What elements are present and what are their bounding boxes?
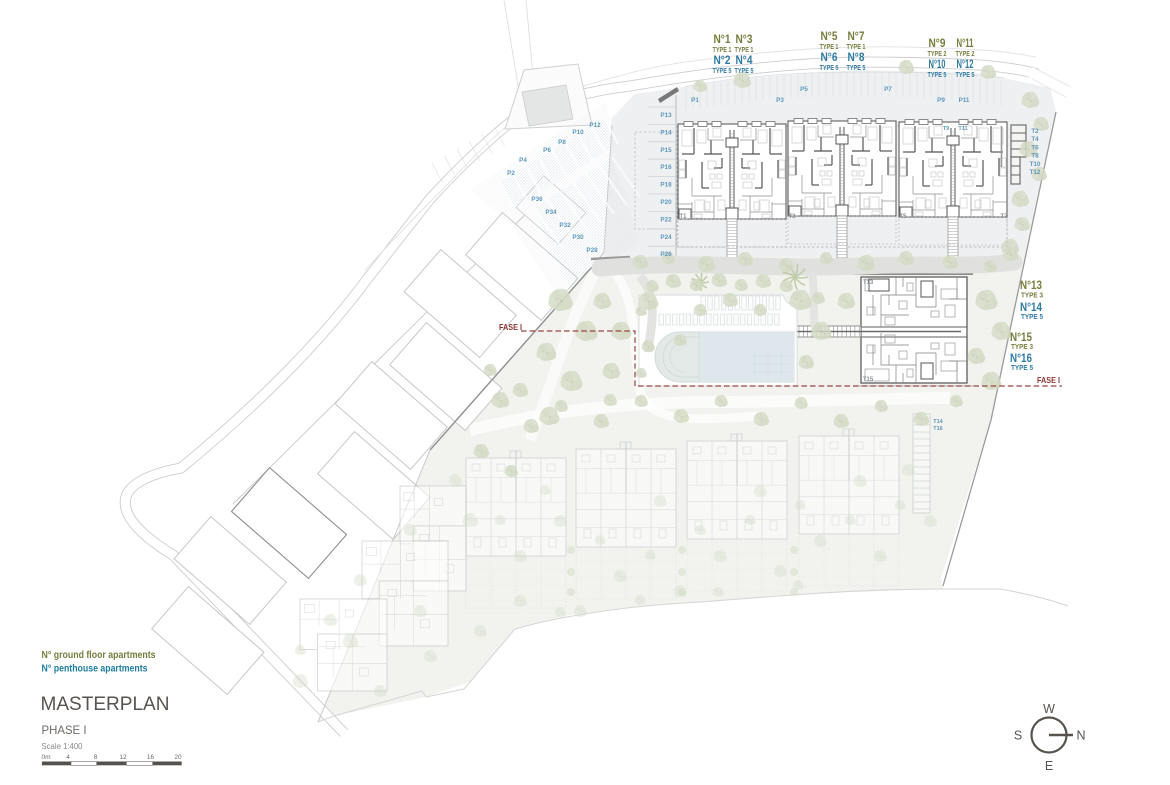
svg-text:T6: T6 bbox=[1031, 144, 1039, 151]
svg-text:P1: P1 bbox=[691, 97, 699, 104]
svg-text:TYPE 5: TYPE 5 bbox=[847, 65, 866, 72]
svg-text:N°10: N°10 bbox=[929, 59, 946, 71]
svg-text:T10: T10 bbox=[1030, 161, 1041, 168]
svg-text:P3: P3 bbox=[776, 97, 784, 104]
svg-text:N°2: N°2 bbox=[714, 55, 731, 67]
svg-text:T14: T14 bbox=[933, 419, 943, 425]
svg-text:TYPE 5: TYPE 5 bbox=[735, 68, 754, 75]
svg-text:T13: T13 bbox=[863, 280, 874, 286]
svg-text:N°6: N°6 bbox=[821, 52, 838, 64]
svg-text:T4: T4 bbox=[1031, 136, 1039, 143]
svg-text:0m: 0m bbox=[42, 754, 51, 761]
svg-text:P32: P32 bbox=[559, 222, 571, 229]
svg-text:P6: P6 bbox=[543, 147, 551, 154]
svg-text:T1: T1 bbox=[679, 214, 687, 220]
svg-text:P20: P20 bbox=[660, 199, 672, 206]
svg-text:TYPE 2: TYPE 2 bbox=[956, 51, 975, 58]
svg-text:P30: P30 bbox=[572, 234, 584, 241]
svg-text:N°8: N°8 bbox=[848, 52, 866, 64]
svg-text:N°12: N°12 bbox=[957, 59, 974, 71]
svg-text:TYPE 1: TYPE 1 bbox=[820, 44, 839, 51]
svg-text:TYPE 1: TYPE 1 bbox=[713, 47, 732, 54]
svg-text:MASTERPLAN: MASTERPLAN bbox=[41, 693, 170, 715]
svg-text:TYPE 5: TYPE 5 bbox=[956, 72, 975, 79]
svg-text:T11: T11 bbox=[958, 126, 967, 132]
svg-text:TYPE 3: TYPE 3 bbox=[1011, 344, 1033, 351]
svg-text:TYPE 3: TYPE 3 bbox=[1021, 293, 1043, 300]
svg-text:P36: P36 bbox=[531, 196, 543, 203]
svg-text:N°14: N°14 bbox=[1020, 302, 1043, 314]
svg-text:P26: P26 bbox=[660, 251, 672, 258]
svg-text:N° penthouse apartments: N° penthouse apartments bbox=[42, 663, 148, 675]
svg-text:N°9: N°9 bbox=[929, 38, 946, 50]
svg-text:N°1: N°1 bbox=[714, 34, 732, 46]
svg-text:PHASE I: PHASE I bbox=[42, 723, 87, 737]
svg-text:TYPE 5: TYPE 5 bbox=[928, 72, 947, 79]
svg-text:TYPE 5: TYPE 5 bbox=[1021, 314, 1043, 321]
svg-text:P34: P34 bbox=[545, 209, 557, 216]
svg-text:P5: P5 bbox=[800, 86, 808, 93]
svg-text:16: 16 bbox=[147, 754, 155, 761]
svg-text:T15: T15 bbox=[863, 377, 874, 383]
svg-text:P9: P9 bbox=[937, 97, 945, 104]
svg-text:T3: T3 bbox=[788, 214, 796, 220]
svg-text:P10: P10 bbox=[572, 129, 584, 136]
svg-text:N°13: N°13 bbox=[1020, 280, 1042, 292]
svg-text:P16: P16 bbox=[660, 164, 672, 171]
svg-text:P8: P8 bbox=[558, 139, 566, 146]
svg-text:N° ground floor apartments: N° ground floor apartments bbox=[42, 649, 156, 661]
svg-text:4: 4 bbox=[66, 754, 70, 761]
svg-text:TYPE 5: TYPE 5 bbox=[820, 65, 839, 72]
svg-text:P18: P18 bbox=[660, 182, 672, 189]
svg-text:P28: P28 bbox=[586, 247, 598, 254]
svg-text:T9: T9 bbox=[943, 126, 949, 132]
svg-text:N°5: N°5 bbox=[821, 31, 839, 43]
svg-text:P22: P22 bbox=[660, 216, 672, 223]
svg-text:8: 8 bbox=[94, 754, 98, 761]
svg-text:P2: P2 bbox=[507, 170, 515, 177]
svg-text:TYPE 1: TYPE 1 bbox=[735, 47, 754, 54]
svg-text:12: 12 bbox=[119, 754, 127, 761]
svg-text:P7: P7 bbox=[884, 86, 892, 93]
svg-text:Scale 1:400: Scale 1:400 bbox=[42, 741, 83, 751]
svg-text:T16: T16 bbox=[933, 426, 942, 432]
svg-text:TYPE 1: TYPE 1 bbox=[847, 44, 866, 51]
svg-text:N°3: N°3 bbox=[736, 34, 753, 46]
svg-text:N°11: N°11 bbox=[957, 38, 974, 50]
svg-text:TYPE 5: TYPE 5 bbox=[1011, 365, 1033, 372]
svg-text:P14: P14 bbox=[660, 129, 672, 136]
svg-text:T2: T2 bbox=[1031, 128, 1039, 135]
svg-text:20: 20 bbox=[174, 754, 182, 761]
svg-text:TYPE 2: TYPE 2 bbox=[928, 51, 947, 58]
svg-text:N: N bbox=[1076, 729, 1085, 743]
svg-text:P15: P15 bbox=[660, 147, 672, 154]
svg-text:S: S bbox=[1014, 729, 1022, 743]
svg-text:E: E bbox=[1045, 759, 1053, 773]
svg-text:N°16: N°16 bbox=[1010, 353, 1032, 365]
svg-text:W: W bbox=[1043, 702, 1055, 716]
svg-text:T7: T7 bbox=[1000, 214, 1008, 220]
svg-text:P12: P12 bbox=[589, 122, 601, 129]
svg-text:T12: T12 bbox=[1030, 169, 1041, 176]
svg-text:T5: T5 bbox=[899, 214, 907, 220]
svg-text:P11: P11 bbox=[959, 97, 970, 104]
svg-text:TYPE 5: TYPE 5 bbox=[713, 68, 732, 75]
svg-text:P13: P13 bbox=[660, 112, 672, 119]
svg-text:N°15: N°15 bbox=[1010, 332, 1033, 344]
svg-text:FASE I: FASE I bbox=[1037, 375, 1060, 385]
svg-text:N°7: N°7 bbox=[848, 31, 865, 43]
svg-text:FASE I: FASE I bbox=[499, 322, 522, 332]
svg-text:P24: P24 bbox=[660, 234, 672, 241]
svg-text:T8: T8 bbox=[1031, 153, 1039, 160]
svg-text:P4: P4 bbox=[519, 157, 527, 164]
svg-text:N°4: N°4 bbox=[736, 55, 754, 67]
